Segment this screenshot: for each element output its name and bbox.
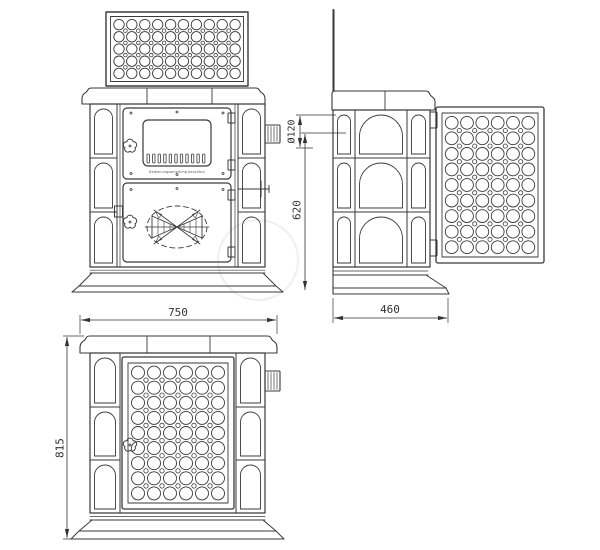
grid-circle-large (507, 163, 520, 176)
tile-arch (338, 217, 351, 263)
grid-circle-large (212, 411, 225, 424)
grid-circle-large (230, 68, 240, 78)
line (72, 286, 79, 292)
grid-circle-large (461, 241, 474, 254)
grid-circle-large (153, 32, 163, 42)
grid-circle-large (212, 472, 225, 485)
grid-circle-large (196, 487, 209, 500)
grid-circle-small (192, 469, 196, 473)
grid-door-knob (123, 438, 136, 451)
rect (436, 107, 544, 263)
grid-circle-large (461, 148, 474, 161)
grid-circle-small (162, 53, 166, 57)
grid-circle-small (144, 423, 148, 427)
grid-circle-small (188, 29, 192, 33)
air-slot (191, 154, 193, 163)
path (82, 88, 265, 104)
grid-circle-large (461, 132, 474, 145)
grid-circle-small (488, 160, 492, 164)
grid-circle-large (217, 68, 227, 78)
grid-circle-large (445, 225, 458, 238)
air-slot (158, 154, 160, 163)
grid-circle-large (191, 44, 201, 54)
grid-circle-small (208, 378, 212, 382)
grid-circle-small (144, 393, 148, 397)
flower-center (129, 145, 131, 147)
grid-circle-large (522, 163, 535, 176)
tile-arch (412, 115, 426, 154)
grid-circle-large (164, 457, 177, 470)
screw (130, 173, 132, 175)
grid-circle-small (457, 206, 461, 210)
grid-circle-small (149, 53, 153, 57)
tile-arch (95, 358, 116, 403)
grid-circle-small (162, 41, 166, 45)
grid-circle-small (160, 393, 164, 397)
screw (222, 189, 224, 191)
tile-arch (243, 109, 261, 154)
grid-circle-large (132, 427, 145, 440)
grid-circle-large (164, 366, 177, 379)
tile-arch (360, 115, 403, 154)
grid-circle-large (476, 194, 489, 207)
grid-circle-large (230, 19, 240, 29)
grid-circle-large (491, 179, 504, 192)
stove-body (90, 353, 265, 513)
grid-circle-large (196, 366, 209, 379)
grid-circle-small (488, 144, 492, 148)
grid-circle-large (476, 179, 489, 192)
flower-center (129, 221, 131, 223)
rect (90, 104, 265, 267)
grid-circle-large (445, 210, 458, 223)
grid-circle-small (519, 129, 523, 133)
tile-arch (95, 109, 113, 154)
rect (90, 353, 265, 513)
grid-circle-small (214, 53, 218, 57)
grid-circle-small (176, 438, 180, 442)
air-slot (169, 154, 171, 163)
grid-circle-large (180, 472, 193, 485)
grid-circle-small (473, 144, 477, 148)
grid-circle-large (178, 19, 188, 29)
grid-circle-large (461, 116, 474, 129)
rect (333, 110, 430, 267)
rect (111, 17, 244, 82)
grid-circle-small (208, 484, 212, 488)
grid-circle-small (503, 222, 507, 226)
door-knobs (123, 438, 136, 451)
grid-circle-large (461, 210, 474, 223)
grid-circle-small (503, 175, 507, 179)
grid-circle-large (132, 396, 145, 409)
grid-circle-small (149, 29, 153, 33)
air-slot (147, 154, 149, 163)
grid-circle-large (165, 19, 175, 29)
grid-circle-small (201, 29, 205, 33)
rect (123, 183, 231, 262)
grid-circle-large (445, 132, 458, 145)
grid-circle-large (445, 241, 458, 254)
grid-circle-large (148, 442, 161, 455)
grid-circle-large (165, 56, 175, 66)
grid-circle-small (488, 129, 492, 133)
grid-circle-large (230, 56, 240, 66)
grid-circle-small (192, 393, 196, 397)
tile-arch (338, 115, 351, 154)
grid-circle-large (217, 56, 227, 66)
grid-circle-small (457, 222, 461, 226)
dimension-height-815: 815 (54, 336, 85, 539)
grid-circle-large (217, 32, 227, 42)
grid-circle-large (178, 32, 188, 42)
grid-circle-large (127, 56, 137, 66)
grid-circle-small (176, 469, 180, 473)
stove-body (90, 104, 265, 267)
grid-circle-large (196, 381, 209, 394)
grid-circle-large (148, 427, 161, 440)
drawing-page: Bedienungsanleitung beachten (0, 0, 600, 550)
grid-circle-large (127, 68, 137, 78)
grid-circle-large (114, 44, 124, 54)
grid-circle-small (192, 378, 196, 382)
line (446, 288, 449, 294)
grid-circle-large (230, 44, 240, 54)
grid-circle-large (180, 427, 193, 440)
grid-circle-small (488, 222, 492, 226)
grid-circle-large (164, 427, 177, 440)
grid-circle-large (153, 44, 163, 54)
grid-circle-large (217, 44, 227, 54)
grid-circle-large (114, 32, 124, 42)
grid-circle-small (457, 129, 461, 133)
path (80, 336, 277, 353)
grid-circle-large (491, 116, 504, 129)
grid-circle-large (476, 132, 489, 145)
front-view-closed: 750 815 (54, 306, 285, 539)
grid-circle-large (522, 179, 535, 192)
grid-circle-small (192, 408, 196, 412)
grid-circle-small (457, 237, 461, 241)
grid-circle-large (164, 411, 177, 424)
grid-circle-large (178, 44, 188, 54)
grid-circle-small (192, 454, 196, 458)
line (426, 275, 446, 288)
grid-circle-small (160, 469, 164, 473)
grid-circle-large (507, 210, 520, 223)
grid-circle-large (491, 132, 504, 145)
grid-circle-small (519, 206, 523, 210)
air-slots (147, 154, 205, 163)
grid-circle-small (227, 41, 231, 45)
depth-label: 460 (380, 303, 400, 316)
tile-arch (95, 412, 116, 456)
line (276, 286, 283, 292)
grid-circle-small (208, 469, 212, 473)
circle-grid (114, 19, 241, 78)
grid-circle-large (491, 210, 504, 223)
top-cornice (82, 88, 265, 104)
grid-circle-small (201, 41, 205, 45)
width-label: 750 (168, 306, 188, 319)
knob-body (265, 371, 280, 391)
grid-circle-small (188, 53, 192, 57)
grid-circle-small (162, 66, 166, 70)
stove-technical-drawing: Bedienungsanleitung beachten (0, 0, 600, 550)
dimension-flue-diameter: Ø120 (286, 115, 337, 148)
circle-grid (445, 116, 534, 253)
grid-circle-large (164, 472, 177, 485)
grid-circle-small (162, 29, 166, 33)
grid-circle-small (144, 454, 148, 458)
stove-base (71, 517, 284, 540)
grid-circle-large (522, 116, 535, 129)
screw (222, 112, 224, 114)
grid-circle-small (124, 66, 128, 70)
grid-circle-small (124, 29, 128, 33)
grid-circle-large (522, 148, 535, 161)
grid-circle-small (488, 175, 492, 179)
grid-circle-large (114, 68, 124, 78)
grid-circle-large (132, 411, 145, 424)
flue-height-label: 620 (291, 200, 304, 220)
top-cornice-side (332, 91, 435, 110)
flower-outline (123, 139, 136, 152)
grid-circle-large (132, 381, 145, 394)
grid-circle-large (491, 241, 504, 254)
air-control-knob (265, 371, 280, 391)
closed-grid-door (122, 357, 234, 509)
grid-circle-large (204, 44, 214, 54)
air-slot (186, 154, 188, 163)
grid-circle-small (503, 206, 507, 210)
line (71, 531, 79, 539)
grid-circle-large (507, 132, 520, 145)
grid-circle-small (124, 53, 128, 57)
grid-circle-large (491, 225, 504, 238)
grid-circle-small (175, 29, 179, 33)
fan-symbol-holder (145, 206, 209, 248)
line (263, 520, 276, 531)
grid-circle-large (148, 366, 161, 379)
grid-circle-large (212, 442, 225, 455)
grid-circle-large (140, 68, 150, 78)
dimension-width-750: 750 (80, 306, 277, 334)
grid-circle-large (522, 225, 535, 238)
grid-circle-small (176, 408, 180, 412)
grid-circle-small (208, 393, 212, 397)
air-slot (175, 154, 177, 163)
grid-circle-large (507, 116, 520, 129)
grid-circle-large (140, 19, 150, 29)
dimension-depth-460: 460 (333, 298, 448, 323)
door-latch (115, 206, 123, 217)
grid-circle-large (522, 132, 535, 145)
grid-circle-small (214, 66, 218, 70)
grid-circle-large (180, 381, 193, 394)
grid-circle-large (212, 381, 225, 394)
grid-circle-large (191, 56, 201, 66)
grid-circle-small (160, 423, 164, 427)
air-slot (197, 154, 199, 163)
tile-arch (241, 412, 261, 456)
grid-circle-large (212, 487, 225, 500)
grid-circle-large (212, 366, 225, 379)
grid-circle-small (144, 484, 148, 488)
grid-circle-small (457, 160, 461, 164)
grid-circle-large (461, 225, 474, 238)
grid-circle-large (491, 194, 504, 207)
top-grid-panel (106, 12, 248, 86)
grid-circle-large (476, 163, 489, 176)
grid-circle-small (192, 423, 196, 427)
grid-circle-small (176, 393, 180, 397)
line (276, 531, 284, 539)
grid-circle-large (180, 457, 193, 470)
grid-circle-large (204, 32, 214, 42)
grid-circle-small (519, 160, 523, 164)
tile-arch (95, 163, 113, 208)
grid-circle-small (160, 438, 164, 442)
grid-circle-large (165, 44, 175, 54)
grid-circle-small (457, 144, 461, 148)
grid-circle-large (127, 19, 137, 29)
grid-circle-small (519, 175, 523, 179)
flower-center (129, 444, 131, 446)
line (79, 520, 92, 531)
tile-arch (243, 163, 261, 208)
grid-circle-large (204, 19, 214, 29)
grid-circle-large (148, 487, 161, 500)
grid-circle-large (507, 148, 520, 161)
grid-circle-small (208, 408, 212, 412)
grid-circle-large (445, 148, 458, 161)
stove-body-side (333, 110, 430, 267)
grid-circle-small (503, 144, 507, 148)
grid-circle-small (519, 144, 523, 148)
screw (222, 173, 224, 175)
grid-circle-small (149, 66, 153, 70)
tile-arch (338, 163, 351, 208)
tile-arch (95, 217, 113, 263)
grid-circle-small (192, 484, 196, 488)
path (332, 91, 435, 110)
air-slot (203, 154, 205, 163)
grid-circle-large (196, 427, 209, 440)
grid-circle-large (180, 366, 193, 379)
grid-circle-large (114, 56, 124, 66)
height-label: 815 (54, 438, 67, 458)
grid-circle-large (191, 68, 201, 78)
grid-circle-large (476, 241, 489, 254)
grid-circle-large (217, 19, 227, 29)
rect (106, 12, 248, 86)
grid-circle-large (196, 472, 209, 485)
grid-circle-large (153, 19, 163, 29)
tile-arch (241, 358, 261, 403)
grid-circle-large (212, 457, 225, 470)
grid-circle-large (148, 396, 161, 409)
grid-circle-large (165, 32, 175, 42)
tile-arch (412, 163, 426, 208)
grid-circle-large (212, 396, 225, 409)
upper-door-knob (123, 139, 136, 152)
screw (176, 111, 178, 113)
grid-circle-small (214, 29, 218, 33)
grid-circle-large (127, 32, 137, 42)
grid-circle-large (132, 366, 145, 379)
knob-body (265, 125, 280, 143)
grid-circle-large (164, 487, 177, 500)
grid-circle-small (227, 29, 231, 33)
grid-circle-large (230, 32, 240, 42)
stove-base (72, 270, 283, 292)
grid-circle-small (473, 206, 477, 210)
grid-circle-large (148, 457, 161, 470)
tile-arch (95, 465, 116, 509)
tile-arch (360, 217, 403, 263)
screw (176, 174, 178, 176)
circle-grid (132, 366, 225, 500)
grid-circle-small (208, 423, 212, 427)
grid-circle-small (503, 191, 507, 195)
grid-circle-small (519, 237, 523, 241)
grid-circle-large (165, 68, 175, 78)
grid-circle-large (196, 411, 209, 424)
grid-circle-large (153, 68, 163, 78)
grid-circle-small (519, 191, 523, 195)
screw (130, 112, 132, 114)
tile-arch (412, 217, 426, 263)
grid-circle-small (149, 41, 153, 45)
grid-circle-large (522, 241, 535, 254)
grid-circle-large (212, 427, 225, 440)
screw (176, 188, 178, 190)
grid-circle-small (144, 469, 148, 473)
tile-arch (241, 465, 261, 509)
top-cornice (80, 336, 277, 353)
grid-circle-small (473, 191, 477, 195)
grid-circle-small (214, 41, 218, 45)
grid-circle-small (160, 454, 164, 458)
grid-circle-small (519, 222, 523, 226)
grid-circle-large (445, 179, 458, 192)
grid-circle-large (180, 442, 193, 455)
tile-arch (360, 163, 403, 208)
grid-circle-small (160, 378, 164, 382)
grid-circle-large (476, 210, 489, 223)
rect (122, 357, 234, 509)
grid-circle-large (204, 68, 214, 78)
grid-circle-large (507, 179, 520, 192)
grid-circle-small (473, 129, 477, 133)
grid-circle-small (188, 66, 192, 70)
tile-arch (243, 217, 261, 263)
stove-base-side (333, 267, 449, 294)
grid-circle-small (503, 160, 507, 164)
upper-door: Bedienungsanleitung beachten (123, 108, 231, 179)
grid-circle-small (137, 41, 141, 45)
grid-circle-large (148, 472, 161, 485)
grid-circle-large (507, 225, 520, 238)
grid-circle-small (473, 160, 477, 164)
ceramic-tiles (95, 109, 261, 263)
grid-circle-large (140, 44, 150, 54)
grid-circle-small (503, 237, 507, 241)
grid-circle-small (176, 484, 180, 488)
lower-door (115, 183, 232, 262)
flue-diameter-label: Ø120 (286, 119, 298, 143)
